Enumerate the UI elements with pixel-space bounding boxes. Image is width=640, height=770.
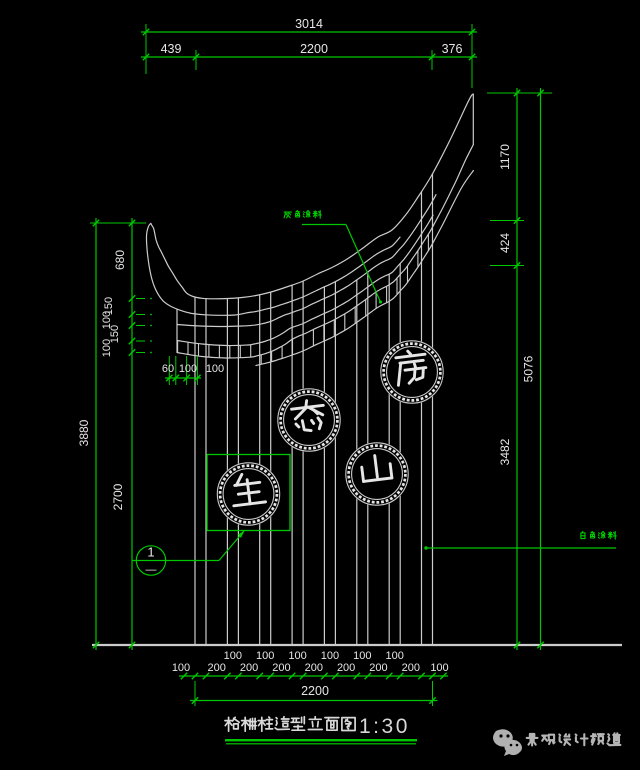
svg-text:200: 200 [272,662,290,674]
svg-text:1170: 1170 [498,144,512,170]
svg-text:100: 100 [288,650,306,662]
svg-text:100: 100 [353,650,371,662]
svg-text:2200: 2200 [300,42,328,56]
svg-text:2200: 2200 [301,684,329,698]
svg-text:3482: 3482 [498,438,512,465]
svg-text:5076: 5076 [522,355,536,382]
svg-text:680: 680 [113,250,127,270]
svg-text:200: 200 [208,662,226,674]
svg-text:1:30: 1:30 [359,715,410,738]
svg-text:2700: 2700 [111,483,125,510]
svg-text:376: 376 [442,42,463,56]
svg-text:100: 100 [385,650,403,662]
svg-text:424: 424 [498,233,512,253]
svg-text:200: 200 [402,662,420,674]
svg-text:100: 100 [101,339,113,357]
svg-text:3014: 3014 [295,17,323,31]
svg-text:100: 100 [206,363,224,375]
svg-text:—: — [146,564,157,576]
svg-text:439: 439 [161,42,182,56]
svg-text:200: 200 [337,662,355,674]
svg-text:200: 200 [305,662,323,674]
svg-text:3880: 3880 [77,419,91,446]
svg-text:100: 100 [179,363,197,375]
svg-text:100: 100 [172,662,190,674]
svg-text:200: 200 [240,662,258,674]
svg-text:100: 100 [321,650,339,662]
svg-text:100: 100 [430,662,448,674]
svg-text:100: 100 [256,650,274,662]
svg-text:1: 1 [147,545,154,560]
svg-text:200: 200 [369,662,387,674]
svg-text:100: 100 [224,650,242,662]
svg-text:60: 60 [162,363,174,375]
